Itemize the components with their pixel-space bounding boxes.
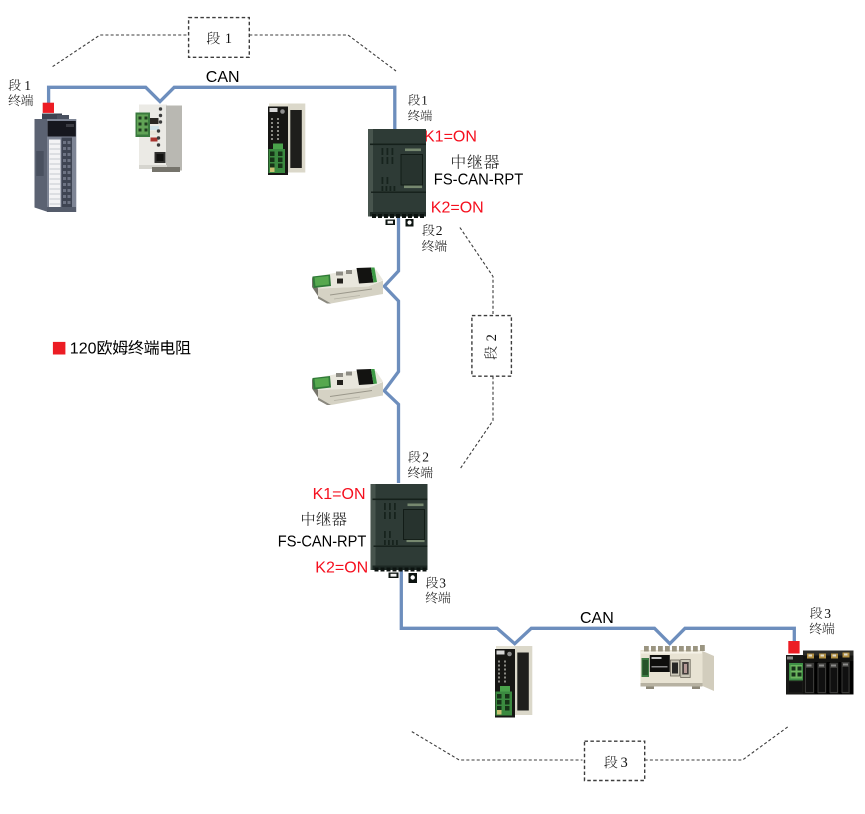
- svg-text:3: 3: [439, 575, 446, 590]
- svg-text:K2=ON: K2=ON: [431, 199, 484, 216]
- svg-text:K1=ON: K1=ON: [313, 486, 366, 503]
- svg-text:FS-CAN-RPT: FS-CAN-RPT: [278, 533, 367, 550]
- svg-text:3: 3: [824, 606, 831, 621]
- svg-text:2: 2: [422, 450, 429, 465]
- svg-text:2: 2: [484, 334, 500, 341]
- svg-text:CAN: CAN: [206, 69, 240, 86]
- svg-text:CAN: CAN: [580, 610, 614, 627]
- svg-text:FS-CAN-RPT: FS-CAN-RPT: [434, 171, 524, 188]
- svg-text:2: 2: [436, 223, 443, 238]
- svg-text:3: 3: [621, 755, 628, 771]
- svg-text:K2=ON: K2=ON: [315, 560, 368, 577]
- svg-text:120: 120: [70, 341, 97, 358]
- svg-text:1: 1: [421, 93, 428, 108]
- svg-text:1: 1: [225, 31, 232, 47]
- svg-text:K1=ON: K1=ON: [424, 129, 477, 146]
- svg-text:1: 1: [24, 78, 31, 93]
